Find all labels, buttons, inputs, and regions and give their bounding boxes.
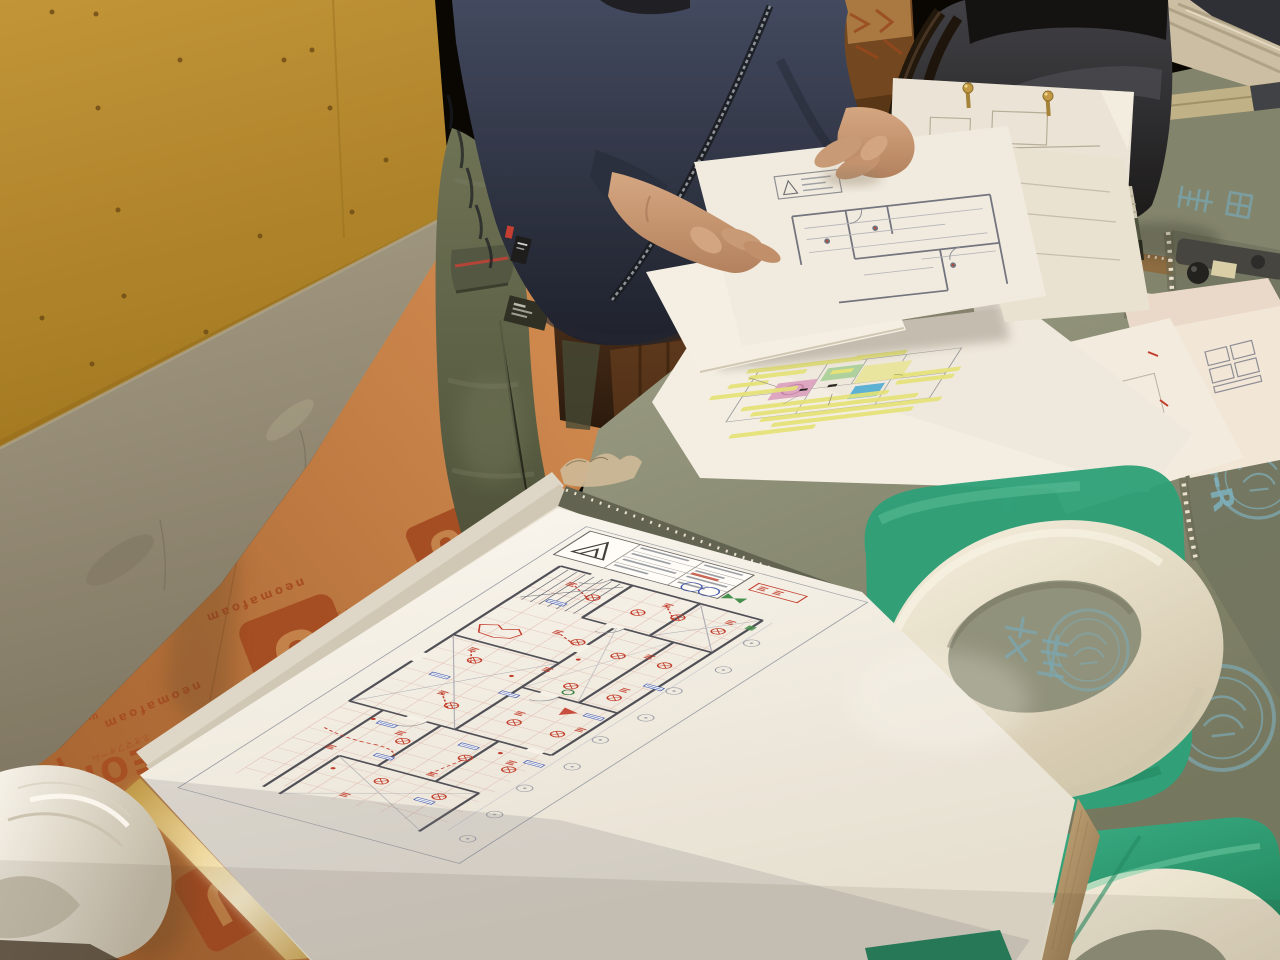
construction-site-photo: U U U NEOMA FOAM TM NEOMA FOAM neomafoam	[0, 0, 1280, 960]
photo-canvas: U U U NEOMA FOAM TM NEOMA FOAM neomafoam	[0, 0, 1280, 960]
